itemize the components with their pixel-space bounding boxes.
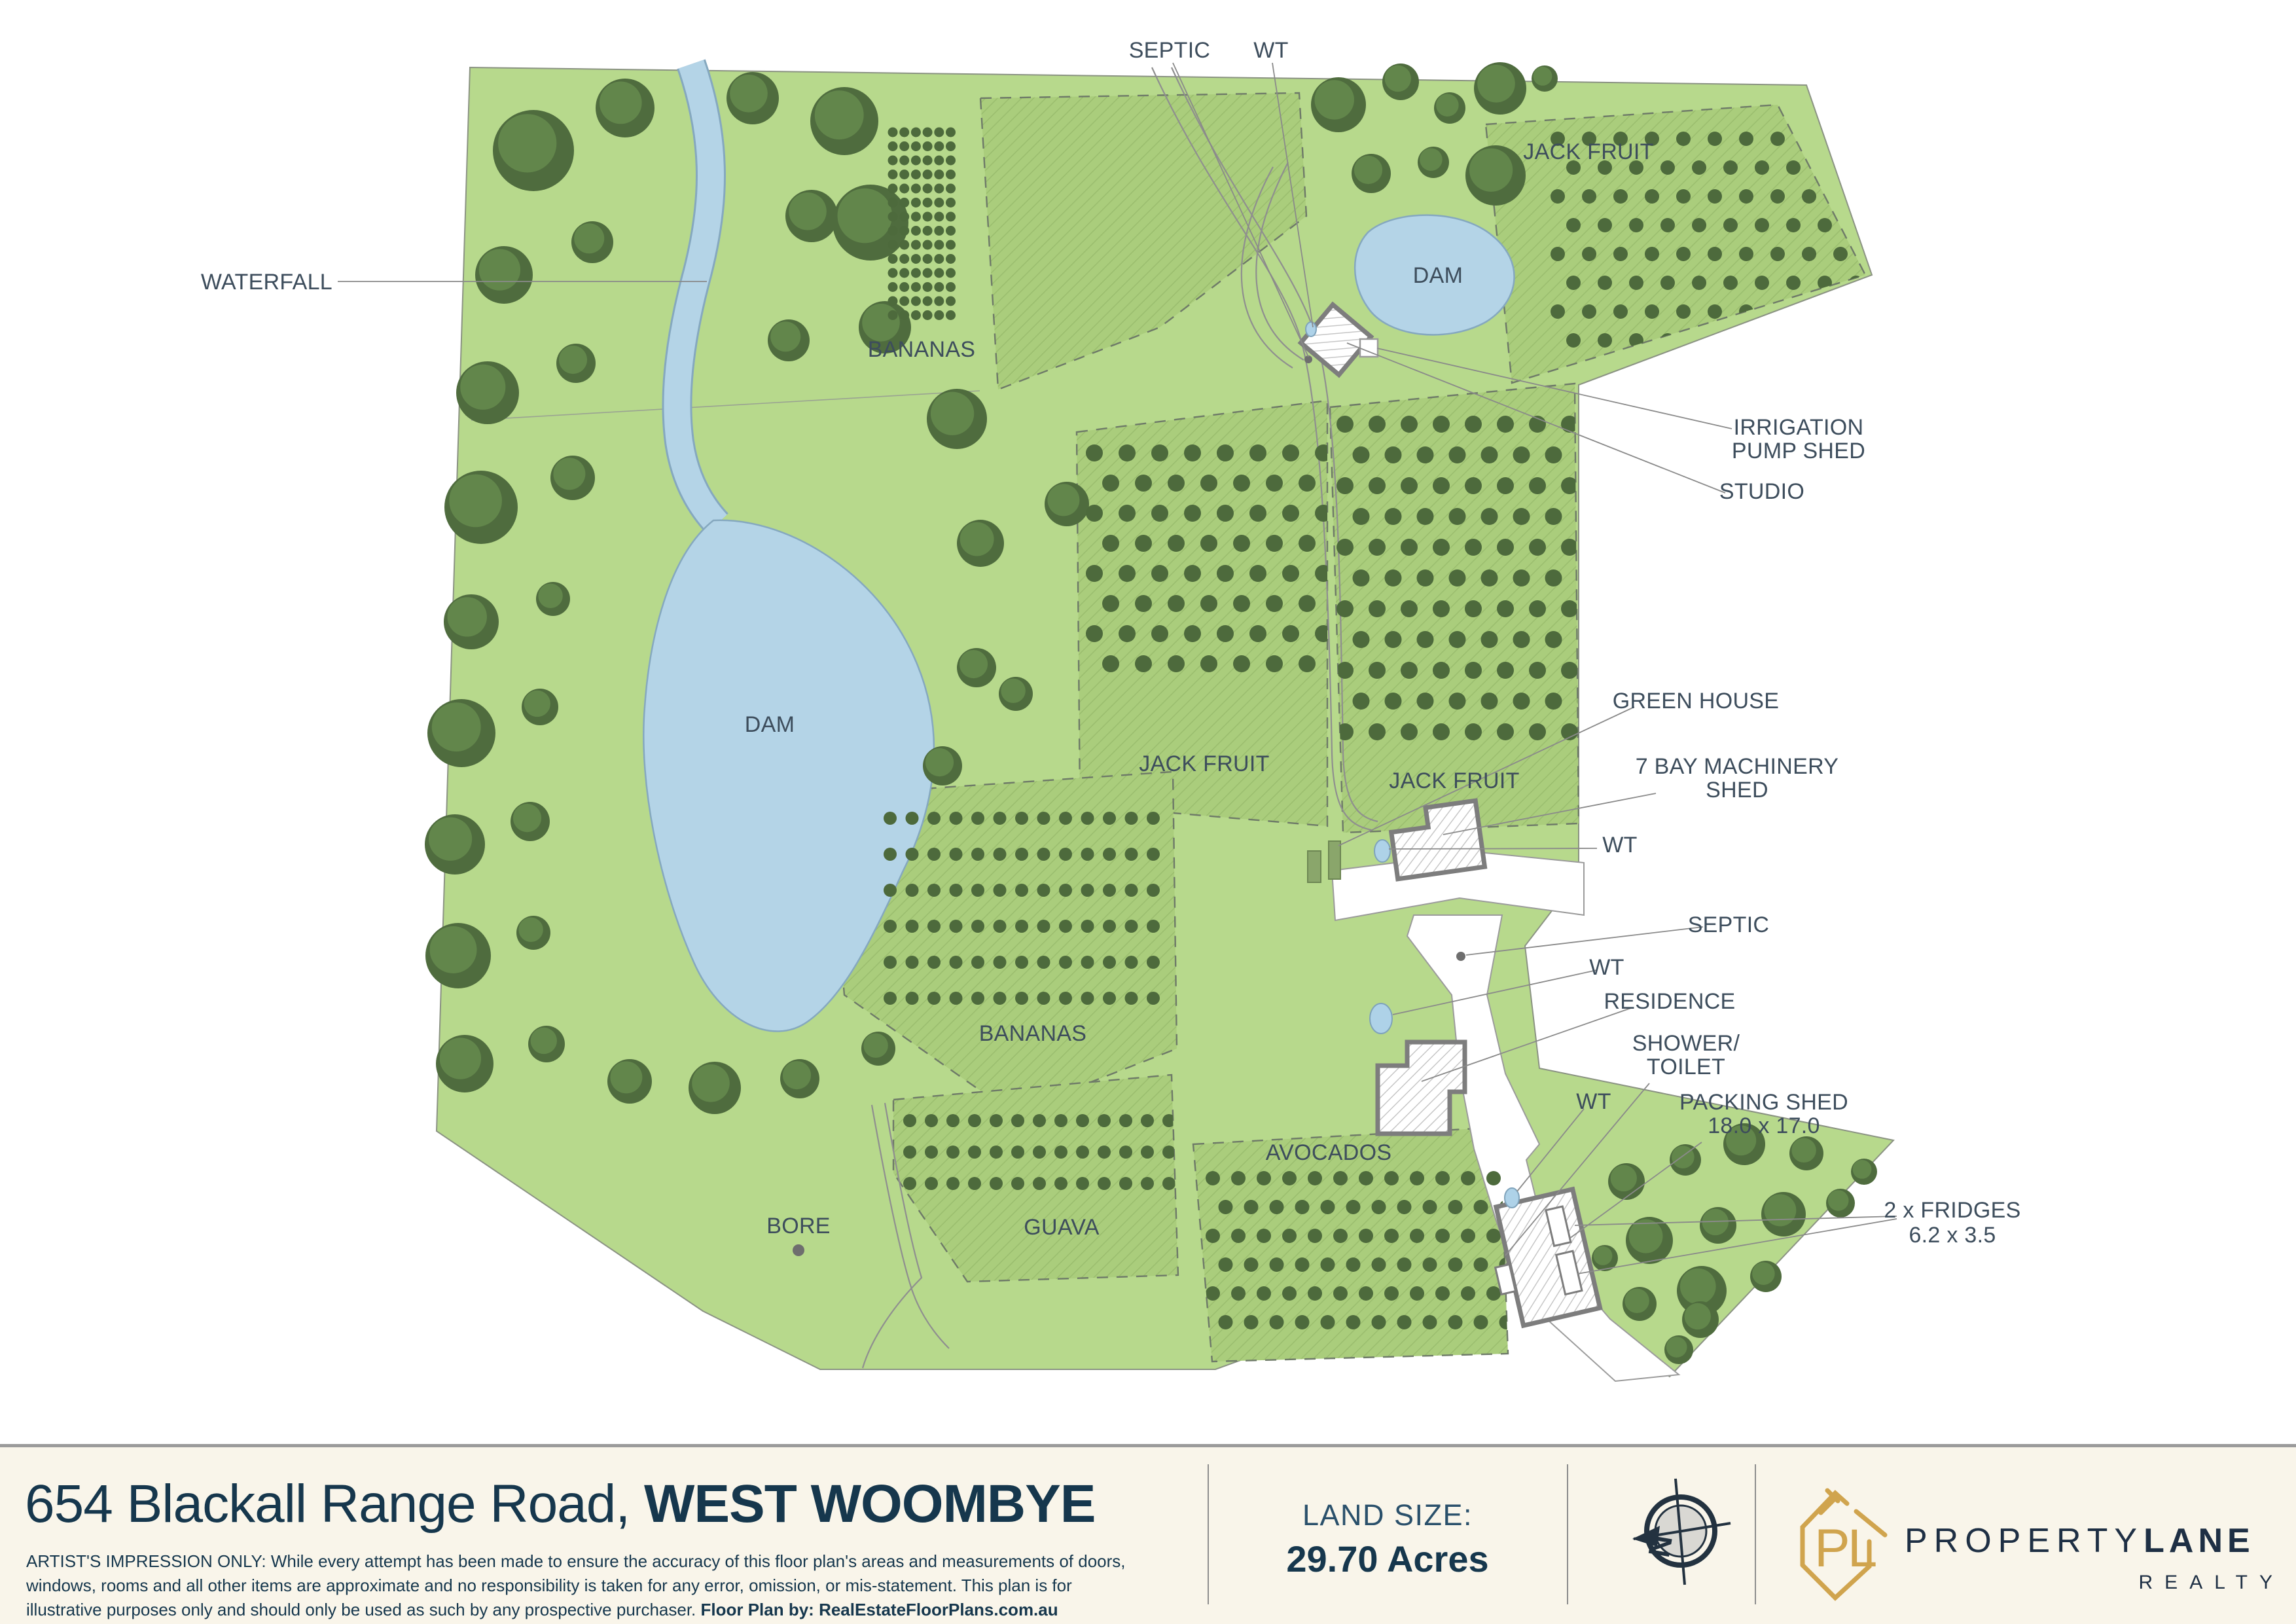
site-plan-map: SEPTIC WT WATERFALL JACK FRUIT BANANAS D… — [0, 0, 2296, 1444]
footer-divider-3 — [1755, 1464, 1756, 1604]
logo-name-bold: LANE — [2144, 1522, 2255, 1560]
footer-divider-2 — [1567, 1464, 1568, 1604]
label-shower-1: SHOWER/ — [1632, 1031, 1740, 1056]
label-wt-bottom: WT — [1576, 1089, 1611, 1114]
label-waterfall: WATERFALL — [201, 270, 332, 295]
land-size-value: 29.70 Acres — [1230, 1538, 1545, 1580]
label-packing-2: 18.0 x 17.0 — [1708, 1113, 1820, 1138]
label-guava: GUAVA — [1024, 1215, 1100, 1240]
label-irrigation-2: PUMP SHED — [1732, 439, 1865, 463]
svg-text:PROPERTYLANE: PROPERTYLANE — [1905, 1522, 2255, 1560]
label-bananas-center: BANANAS — [979, 1021, 1087, 1046]
page-title: 654 Blackall Range Road, WEST WOOMBYE — [25, 1473, 1095, 1535]
green-house-2 — [1329, 841, 1340, 879]
bore-dot — [793, 1244, 804, 1256]
green-house-1 — [1308, 851, 1321, 882]
label-dam-left: DAM — [745, 712, 795, 737]
land-size-block: LAND SIZE: 29.70 Acres — [1230, 1498, 1545, 1580]
land-size-label: LAND SIZE: — [1230, 1498, 1545, 1532]
label-jackfruit-right: JACK FRUIT — [1389, 768, 1519, 793]
address-street: 654 Blackall Range Road, — [25, 1474, 644, 1534]
label-fridges-1: 2 x FRIDGES — [1884, 1198, 2020, 1223]
disclaimer-line-3: illustrative purposes only and should on… — [26, 1600, 701, 1619]
leader-wt-shed — [1389, 848, 1597, 849]
footer-divider-1 — [1208, 1464, 1209, 1604]
label-avocados: AVOCADOS — [1266, 1140, 1392, 1165]
disclaimer: ARTIST'S IMPRESSION ONLY: While every at… — [26, 1549, 1126, 1622]
septic-mid-dot — [1456, 952, 1465, 961]
address-suburb: WEST WOOMBYE — [644, 1474, 1096, 1534]
label-residence: RESIDENCE — [1604, 989, 1735, 1014]
label-wt-top: WT — [1253, 38, 1288, 63]
disclaimer-line-2: windows, rooms and all other items are a… — [26, 1576, 1072, 1595]
label-jackfruit-topright: JACK FRUIT — [1523, 139, 1653, 164]
label-packing-1: PACKING SHED — [1679, 1090, 1848, 1115]
water-tank-shed — [1374, 840, 1390, 862]
label-wt-mid: WT — [1589, 955, 1624, 980]
label-bananas-top: BANANAS — [868, 337, 976, 362]
label-jackfruit-left: JACK FRUIT — [1139, 751, 1269, 776]
water-tank-residence — [1370, 1003, 1392, 1034]
site-plan-page: SEPTIC WT WATERFALL JACK FRUIT BANANAS D… — [0, 0, 2296, 1624]
water-tank-studio — [1306, 322, 1316, 336]
label-fridges-2: 6.2 x 3.5 — [1909, 1223, 1996, 1248]
brand-logo: PL PROPERTYLANE REALTY — [1795, 1467, 2292, 1611]
footer-bar: 654 Blackall Range Road, WEST WOOMBYE AR… — [0, 1444, 2296, 1624]
label-wt-shed: WT — [1602, 833, 1637, 857]
label-septic-top: SEPTIC — [1129, 38, 1211, 63]
label-green-house: GREEN HOUSE — [1613, 689, 1780, 713]
label-septic-mid: SEPTIC — [1688, 912, 1770, 937]
label-dam-top: DAM — [1413, 263, 1463, 288]
label-machinery-1: 7 BAY MACHINERY — [1636, 754, 1839, 779]
disclaimer-line-1: ARTIST'S IMPRESSION ONLY: While every at… — [26, 1551, 1126, 1571]
logo-subtitle: REALTY — [2139, 1572, 2284, 1593]
label-shower-2: TOILET — [1647, 1055, 1725, 1079]
label-irrigation-1: IRRIGATION — [1734, 415, 1864, 440]
label-bore: BORE — [766, 1214, 831, 1238]
label-studio: STUDIO — [1719, 479, 1804, 504]
compass-icon: N — [1626, 1476, 1737, 1597]
label-machinery-2: SHED — [1706, 778, 1768, 803]
disclaimer-credit: Floor Plan by: RealEstateFloorPlans.com.… — [701, 1600, 1058, 1619]
logo-mark-letters: PL — [1814, 1519, 1876, 1578]
logo-name-regular: PROPERTY — [1905, 1522, 2144, 1560]
